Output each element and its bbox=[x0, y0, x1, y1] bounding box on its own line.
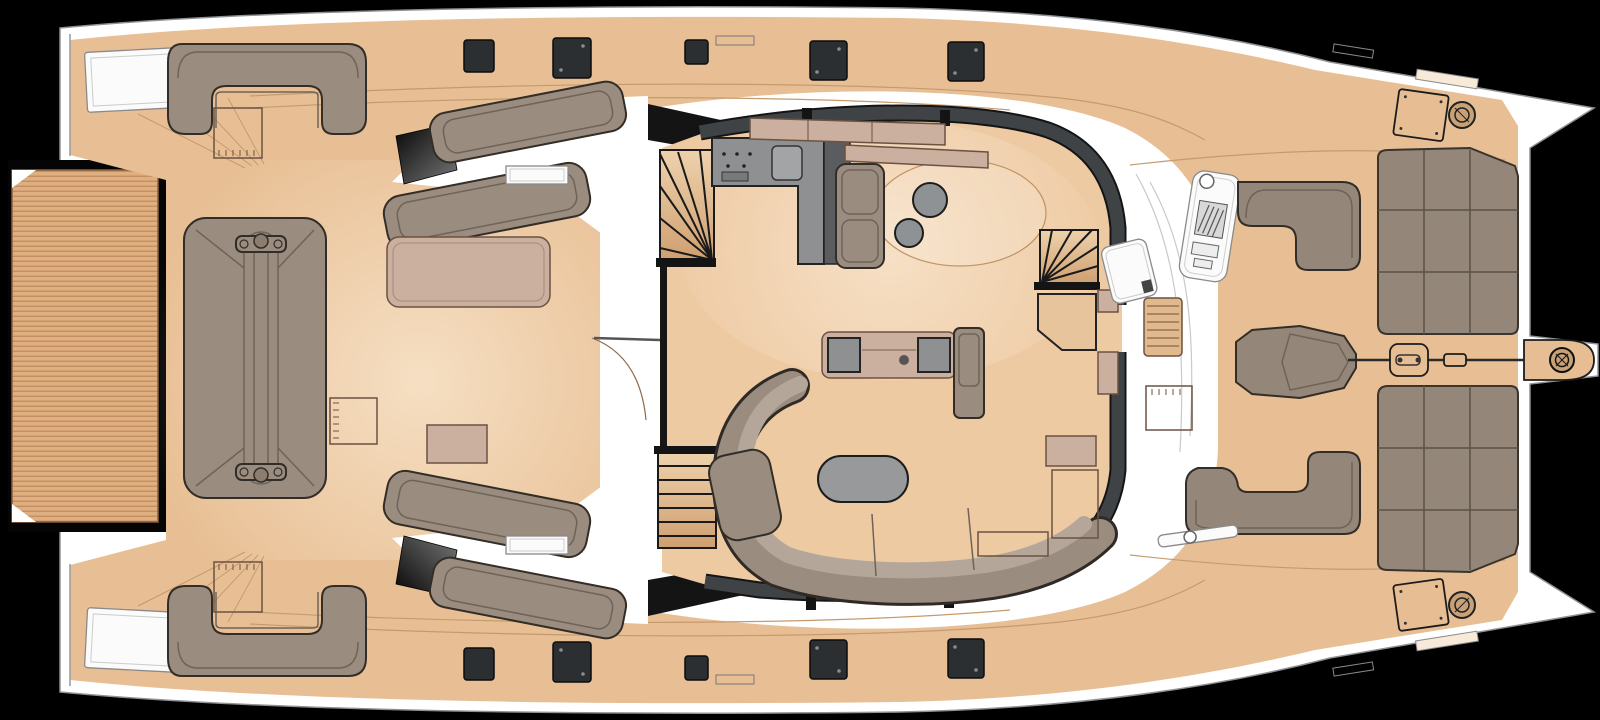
galley-control bbox=[722, 172, 748, 181]
straight-staircase bbox=[654, 446, 718, 548]
bowsprit-pod bbox=[1524, 340, 1594, 380]
round-pouf bbox=[895, 219, 923, 247]
deck-plan-canvas bbox=[0, 0, 1600, 720]
helm-vent bbox=[1194, 200, 1227, 238]
back-to-back-double-lounger bbox=[184, 218, 326, 498]
oval-coffee-table bbox=[818, 456, 908, 502]
teak-decking bbox=[12, 170, 158, 522]
bow-double-recliner bbox=[1236, 326, 1356, 398]
sliding-door-wall bbox=[660, 266, 667, 450]
area-rug-oval bbox=[874, 160, 1046, 266]
boarding-step-grate bbox=[1144, 298, 1182, 356]
bow-deck-hatch bbox=[1393, 89, 1449, 142]
bow-winch bbox=[1449, 102, 1475, 128]
armchair bbox=[836, 164, 884, 268]
stern-locker bbox=[84, 48, 179, 113]
wall-cabinet bbox=[1046, 436, 1096, 466]
tv-cabinet bbox=[954, 328, 984, 418]
aft-swim-platform bbox=[8, 160, 170, 532]
round-pouf bbox=[913, 183, 947, 217]
wall-cabinet bbox=[1098, 352, 1118, 394]
sunpad-grid bbox=[1378, 386, 1518, 572]
salon bbox=[654, 105, 1122, 610]
sink bbox=[772, 146, 802, 180]
catamaran-deck-plan bbox=[0, 0, 1600, 720]
sunpad-grid bbox=[1378, 148, 1518, 334]
daybed-cushion bbox=[387, 237, 550, 307]
daybed-cushion-small bbox=[427, 425, 487, 463]
fan-staircase bbox=[656, 150, 716, 267]
media-console bbox=[822, 332, 956, 378]
turnbuckle bbox=[1444, 354, 1466, 366]
fan-staircase bbox=[1034, 230, 1100, 290]
service-console bbox=[506, 166, 568, 184]
